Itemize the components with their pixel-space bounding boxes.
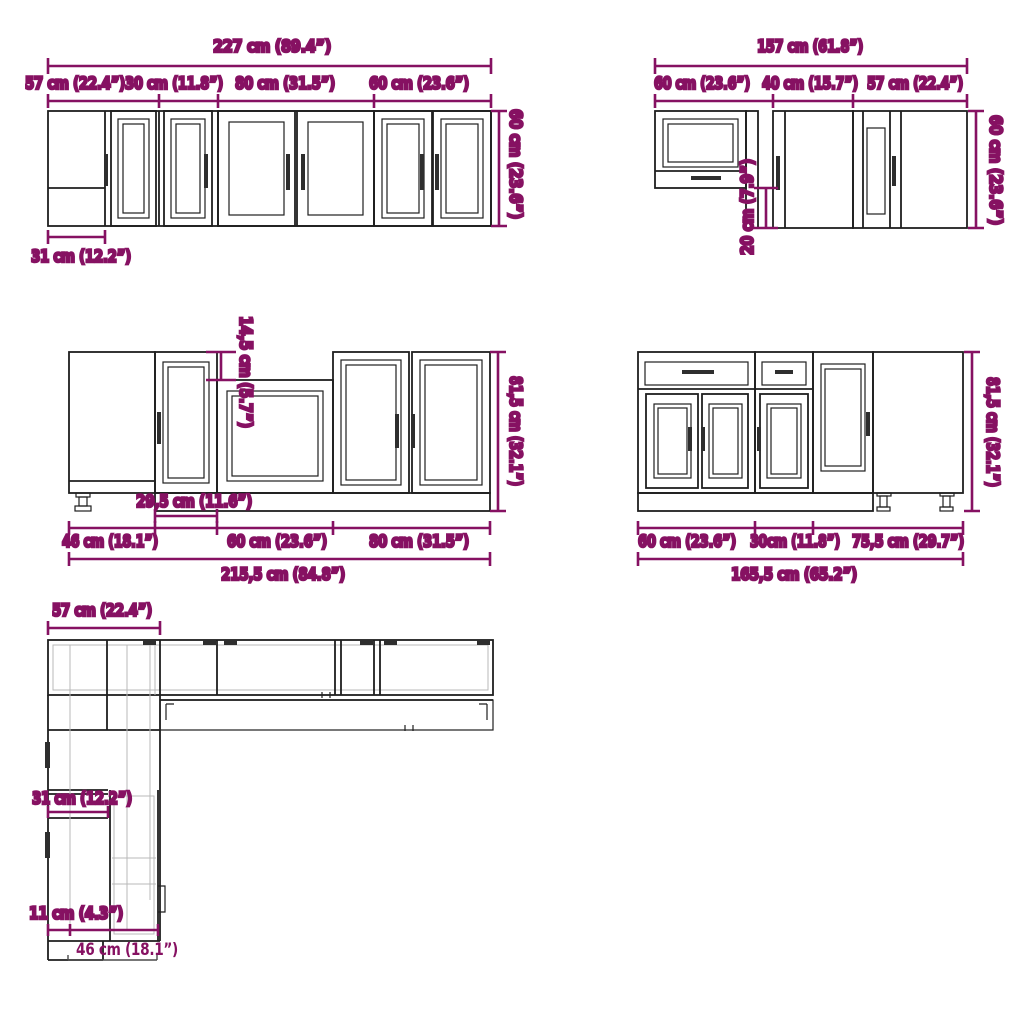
door-handle xyxy=(776,156,780,190)
door-handle xyxy=(892,156,896,186)
door-handle xyxy=(157,412,161,444)
door-handle xyxy=(411,414,415,448)
dim-label-31: 31 cm (12.2”) xyxy=(32,789,132,809)
dimension-diagram-page: 227 cm (89.4”) 57 cm (22.4”) 30 cm (11.8… xyxy=(0,0,1024,1024)
hinge-mark xyxy=(477,640,490,645)
door-handle xyxy=(757,427,761,451)
dim-label-57: 57 cm (22.4”) xyxy=(867,74,963,94)
door-handle xyxy=(701,427,705,451)
dim-label-drop-20: 20 cm (7.9”) xyxy=(738,159,758,255)
dim-label-40: 40 cm (15.7”) xyxy=(762,74,858,94)
dim-label-height-60: 60 cm (23.6”) xyxy=(505,109,525,219)
door-handle xyxy=(301,154,305,190)
door-handle xyxy=(104,154,108,186)
dim-label-57: 57 cm (22.4”) xyxy=(52,601,152,621)
hinge-mark xyxy=(203,640,216,645)
dim-label-total-157: 157 cm (61.8”) xyxy=(757,37,863,57)
door-handle xyxy=(286,154,290,190)
dim-label-46: 46 cm (18.1”) xyxy=(76,940,178,960)
dim-label-29-5: 29,5 cm (11.6”) xyxy=(136,492,252,512)
dim-label-11: 11 cm (4.3”) xyxy=(29,904,123,924)
dim-label-60: 60 cm (23.6”) xyxy=(638,532,736,552)
door-handle xyxy=(866,412,870,436)
dim-label-75-5: 75,5 cm (29.7”) xyxy=(852,532,964,552)
dim-label-30: 30cm (11.8”) xyxy=(750,532,840,552)
dim-label-total-215-5: 215,5 cm (84.8”) xyxy=(221,565,345,585)
door-handle xyxy=(420,154,424,190)
dim-base-depth: 46 cm (18.1”) xyxy=(68,940,178,960)
door-handle xyxy=(688,427,692,451)
hinge-mark xyxy=(143,640,156,645)
dim-label-total-227: 227 cm (89.4”) xyxy=(213,37,331,57)
dim-label-height-81-5: 81,5 cm (32.1”) xyxy=(505,376,525,486)
hinge-mark xyxy=(360,640,373,645)
hinge-mark xyxy=(224,640,237,645)
dim-label-80: 80 cm (31.5”) xyxy=(235,74,335,94)
dim-label-60: 60 cm (23.6”) xyxy=(227,532,327,552)
drawer-handle xyxy=(682,370,714,374)
dim-label-30: 30 cm (11.8”) xyxy=(125,74,223,94)
dim-label-80: 80 cm (31.5”) xyxy=(369,532,469,552)
dim-label-60: 60 cm (23.6”) xyxy=(654,74,750,94)
dim-label-depth-31: 31 cm (12.2”) xyxy=(31,247,131,267)
kitchen-dimensions-svg: 227 cm (89.4”) 57 cm (22.4”) 30 cm (11.8… xyxy=(0,0,1024,1024)
door-handle xyxy=(45,742,50,768)
drawer-handle xyxy=(775,370,793,374)
dim-label-46: 46 cm (18.1”) xyxy=(62,532,158,552)
dim-label-recess-14-5: 14,5 cm (5.7”) xyxy=(235,316,255,428)
hinge-mark xyxy=(384,640,397,645)
door-handle xyxy=(395,414,399,448)
dim-label-60: 60 cm (23.6”) xyxy=(369,74,469,94)
door-handle xyxy=(204,154,208,188)
dim-label-57: 57 cm (22.4”) xyxy=(25,74,125,94)
dim-label-height-81-5: 81,5 cm (32.1”) xyxy=(982,377,1002,487)
door-handle xyxy=(45,832,50,858)
dim-label-total-165-5: 165,5 cm (65.2”) xyxy=(731,565,857,585)
dim-label-height-60: 60 cm (23.6”) xyxy=(985,115,1005,225)
door-handle xyxy=(691,176,721,180)
door-handle xyxy=(435,154,439,190)
